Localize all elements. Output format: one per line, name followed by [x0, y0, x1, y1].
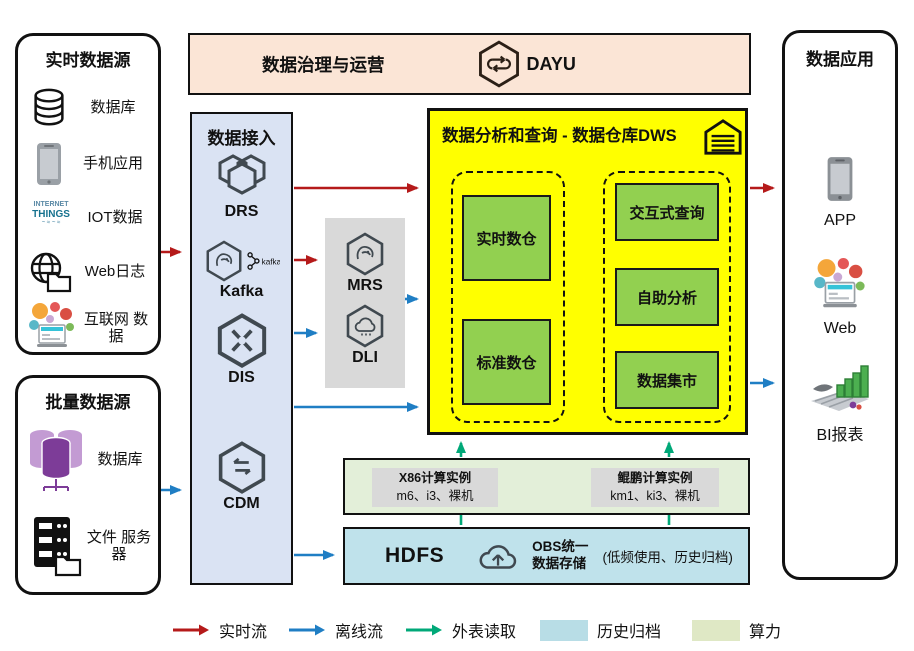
- blue-arrow-icon: [288, 623, 326, 637]
- realtime-sources-panel: 实时数据源 数据库 手机应用 INTERNET THINGS ~: [15, 33, 161, 355]
- file-server-icon: [28, 513, 82, 579]
- compute-panel: X86计算实例 m6、i3、裸机 鲲鹏计算实例 km1、ki3、裸机: [343, 458, 750, 515]
- source-label: 互联网 数据: [80, 311, 152, 346]
- x86-instance-box: X86计算实例 m6、i3、裸机: [372, 468, 498, 507]
- mrs-hexagon-icon: [344, 232, 386, 276]
- archive-swatch: [540, 620, 588, 641]
- instance-specs: m6、i3、裸机: [372, 488, 498, 506]
- standard-warehouse-box: 标准数仓: [462, 319, 551, 405]
- box-label: 数据集市: [637, 370, 697, 391]
- drs-hexagons-icon: [213, 150, 271, 202]
- dws-title: 数据分析和查询 - 数据仓库DWS: [442, 122, 677, 146]
- governance-title: 数据治理与运营: [262, 52, 385, 77]
- dli-hexagon-icon: [344, 304, 386, 348]
- source-label: 手机应用: [74, 155, 152, 172]
- source-row-web-log: Web日志: [18, 246, 158, 298]
- service-label: CDM: [192, 495, 291, 513]
- source-label: Web日志: [78, 263, 152, 280]
- service-label: MRS: [325, 277, 405, 295]
- service-kafka: kafka Kafka: [192, 240, 291, 301]
- service-label: DLI: [325, 349, 405, 367]
- app-label: BI报表: [785, 421, 895, 445]
- legend-compute-power: 算力: [692, 617, 781, 643]
- red-arrow-icon: [172, 623, 210, 637]
- architecture-diagram: 实时数据源 数据库 手机应用 INTERNET THINGS ~: [0, 0, 914, 651]
- box-label: 实时数仓: [476, 228, 536, 249]
- self-service-analysis-box: 自助分析: [615, 268, 719, 326]
- governance-banner: 数据治理与运营 DAYU: [188, 33, 751, 95]
- governance-product-name: DAYU: [527, 54, 576, 75]
- dis-hexagon-icon: [216, 312, 268, 368]
- interactive-query-box: 交互式查询: [615, 183, 719, 241]
- kafka-hexagon-icon: [204, 240, 244, 282]
- app-label: APP: [785, 212, 895, 230]
- app-item-app: APP: [785, 153, 895, 230]
- kunpeng-instance-box: 鲲鹏计算实例 km1、ki3、裸机: [591, 468, 719, 507]
- source-row-mobile-app: 手机应用: [18, 138, 158, 190]
- source-row-batch-database: 数据库: [18, 420, 158, 500]
- source-row-iot: INTERNET THINGS ~ ≈ ~ ≈ IOT数据: [18, 192, 158, 244]
- iot-wordcloud-icon: INTERNET THINGS ~ ≈ ~ ≈: [28, 193, 74, 243]
- web-bubbles-icon: [811, 258, 869, 314]
- phone-icon: [28, 140, 70, 188]
- realtime-warehouse-box: 实时数仓: [462, 195, 551, 281]
- processing-panel: MRS DLI: [325, 218, 405, 388]
- warehouse-icon: [702, 117, 744, 157]
- service-cdm: CDM: [192, 440, 291, 513]
- service-label: DRS: [192, 203, 291, 221]
- obs-cloud-upload-icon: [476, 536, 522, 576]
- source-row-database: 数据库: [18, 82, 158, 134]
- purple-database-cluster-icon: [28, 423, 84, 497]
- data-mart-box: 数据集市: [615, 351, 719, 409]
- compute-swatch: [692, 620, 740, 641]
- data-access-title: 数据接入: [192, 124, 291, 149]
- batch-sources-title: 批量数据源: [18, 388, 158, 413]
- storage-note: (低频使用、历史归档): [602, 546, 733, 566]
- batch-sources-panel: 批量数据源 数据库: [15, 375, 161, 595]
- legend-archive: 历史归档: [540, 617, 661, 643]
- kafka-logo-icon: kafka: [246, 250, 280, 272]
- source-row-file-server: 文件 服务器: [18, 508, 158, 584]
- app-item-bi: BI报表: [785, 363, 895, 445]
- storage-panel: HDFS OBS统一 数据存储 (低频使用、历史归档): [343, 527, 750, 585]
- service-mrs: MRS: [325, 232, 405, 295]
- legend-external-read: 外表读取: [405, 617, 516, 643]
- data-apps-panel: 数据应用 APP W: [782, 30, 898, 580]
- source-label: IOT数据: [78, 209, 152, 226]
- legend-label: 算力: [749, 618, 781, 642]
- legend-label: 外表读取: [452, 618, 516, 642]
- legend-label: 实时流: [219, 618, 267, 642]
- obs-label: OBS统一 数据存储: [532, 539, 588, 573]
- data-apps-title: 数据应用: [785, 45, 895, 70]
- dayu-hexagon-icon: [477, 40, 521, 88]
- obs-label-line1: OBS统一: [532, 539, 588, 556]
- legend-realtime-flow: 实时流: [172, 617, 267, 643]
- service-label: DIS: [192, 369, 291, 387]
- source-label: 数据库: [88, 451, 152, 468]
- app-item-web: Web: [785, 258, 895, 338]
- bi-barchart-icon: [809, 363, 871, 415]
- source-label: 数据库: [74, 99, 152, 116]
- obs-label-line2: 数据存储: [532, 556, 588, 573]
- legend-label: 历史归档: [597, 618, 661, 642]
- box-label: 交互式查询: [629, 202, 704, 223]
- legend-label: 离线流: [335, 618, 383, 642]
- green-arrow-icon: [405, 623, 443, 637]
- service-dli: DLI: [325, 304, 405, 367]
- database-icon: [28, 85, 70, 131]
- box-label: 自助分析: [637, 287, 697, 308]
- data-access-panel: 数据接入 DRS kafka: [190, 112, 293, 585]
- instance-name: X86计算实例: [372, 470, 498, 488]
- phone-icon: [820, 153, 860, 205]
- internet-bubbles-icon: [28, 301, 76, 355]
- source-row-internet-data: 互联网 数据: [18, 300, 158, 356]
- service-label: Kafka: [192, 283, 291, 301]
- cdm-hexagon-icon: [217, 440, 267, 494]
- source-label: 文件 服务器: [86, 529, 152, 564]
- web-globe-folder-icon: [28, 248, 74, 296]
- legend-offline-flow: 离线流: [288, 617, 383, 643]
- app-label: Web: [785, 320, 895, 338]
- instance-specs: km1、ki3、裸机: [591, 488, 719, 506]
- hdfs-label: HDFS: [385, 544, 444, 568]
- service-dis: DIS: [192, 312, 291, 387]
- dws-panel: 数据分析和查询 - 数据仓库DWS 实时数仓 标准数仓 交互式查询 自助分析 数…: [427, 108, 748, 435]
- service-drs: DRS: [192, 150, 291, 221]
- instance-name: 鲲鹏计算实例: [591, 470, 719, 488]
- realtime-sources-title: 实时数据源: [18, 46, 158, 71]
- svg-text:kafka: kafka: [261, 257, 279, 266]
- box-label: 标准数仓: [476, 352, 536, 373]
